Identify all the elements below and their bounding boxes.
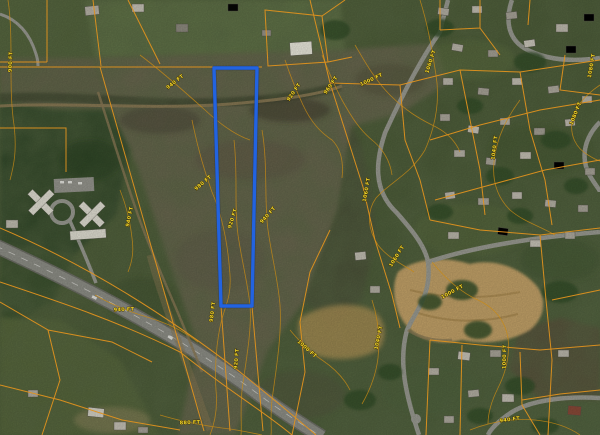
- image-grain: [0, 0, 600, 435]
- map-viewport[interactable]: 900 FT940 FT920 FT960 FT1000 FT1060 FT10…: [0, 0, 600, 435]
- contour-elevation-label: 1000 FT: [502, 344, 509, 369]
- contour-elevation-label: 900 FT: [8, 51, 15, 72]
- contour-elevation-label: 880 FT: [180, 420, 201, 427]
- contour-elevation-label: 940 FT: [114, 307, 135, 314]
- satellite-map-canvas[interactable]: 900 FT940 FT920 FT960 FT1000 FT1060 FT10…: [0, 0, 600, 435]
